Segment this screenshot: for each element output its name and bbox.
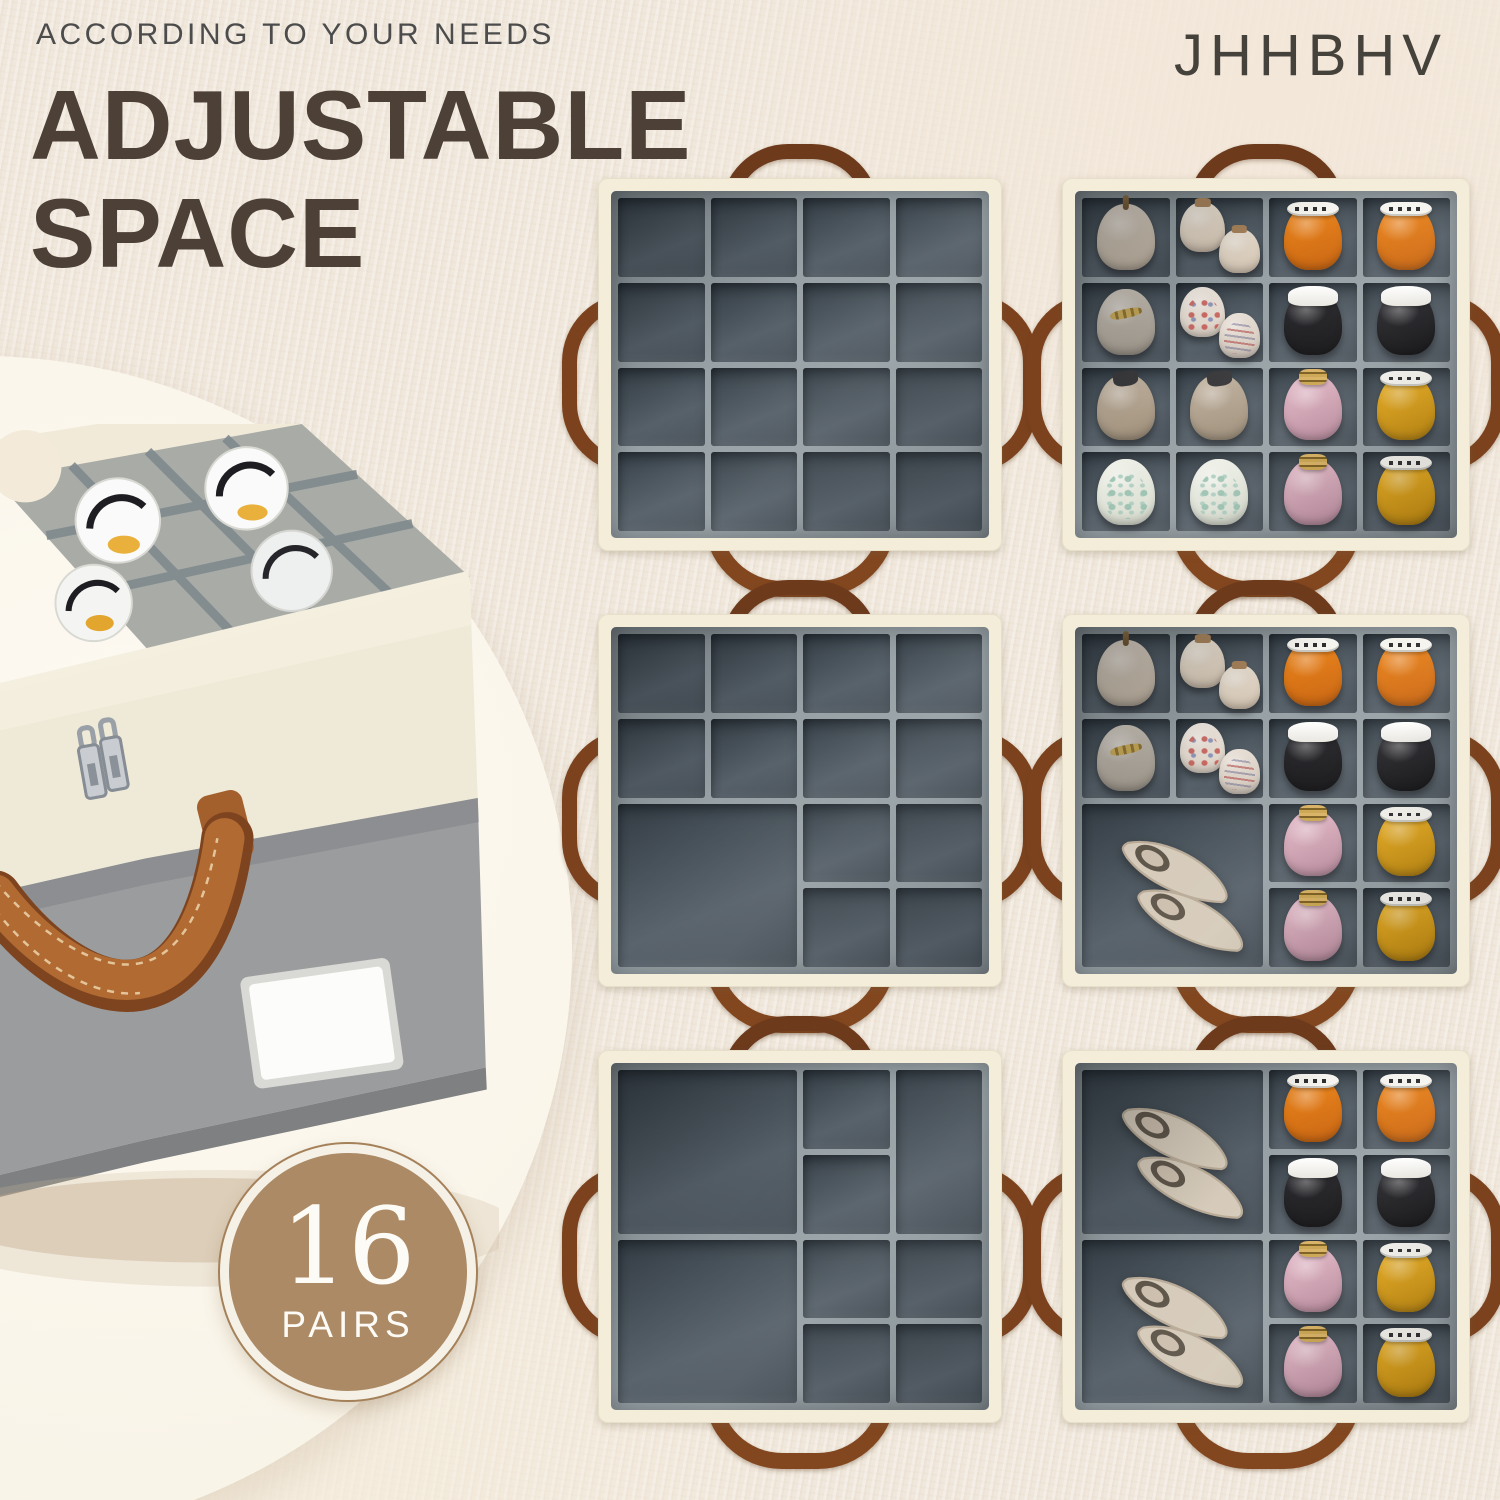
compartment (1363, 452, 1451, 531)
compartment (1363, 719, 1451, 798)
shoe-label-band (1287, 638, 1339, 653)
divider-grid-2 (1075, 191, 1457, 538)
compartment (1269, 1324, 1357, 1403)
compartment (618, 804, 797, 968)
shoe (1097, 459, 1155, 525)
shoe (1284, 640, 1342, 706)
compartment (618, 1240, 797, 1404)
eyebrow-text: ACCORDING TO YOUR NEEDS (36, 18, 555, 52)
shoe (1284, 810, 1342, 876)
shoe (1377, 289, 1435, 355)
compartment (1176, 719, 1264, 798)
compartment (618, 1070, 797, 1234)
compartment (1082, 634, 1170, 713)
compartment (711, 719, 798, 798)
compartment (618, 198, 705, 277)
shoe-label-band (1380, 1074, 1432, 1089)
shoe (1180, 287, 1226, 337)
shoe-print (1104, 472, 1148, 520)
shoe (1097, 374, 1155, 440)
compartment (896, 1070, 983, 1234)
shoe (1284, 1161, 1342, 1227)
compartment (1176, 634, 1264, 713)
shoe-print (1185, 297, 1220, 333)
shoe-cuff (1381, 286, 1431, 306)
badge-number: 16 (281, 1198, 416, 1296)
shoe-heel-stem (1123, 631, 1129, 646)
shoe-pair (1093, 813, 1252, 957)
compartment (1176, 198, 1264, 277)
compartment (896, 634, 983, 713)
shoe (1284, 1246, 1342, 1312)
shoe (1284, 204, 1342, 270)
shoe (1219, 229, 1259, 273)
compartment (618, 719, 705, 798)
shoe-gold-rings (1299, 890, 1327, 906)
compartment (896, 804, 983, 883)
shoe (1377, 1076, 1435, 1142)
shoe (1377, 204, 1435, 270)
compartment (803, 1070, 890, 1149)
shoe-gold-accent (1109, 306, 1142, 321)
compartment (618, 634, 705, 713)
shoe-gold-rings (1299, 369, 1327, 385)
compartment (1082, 368, 1170, 447)
shoe (1284, 374, 1342, 440)
shoe-gold-accent (1109, 742, 1142, 757)
compartment (1082, 1070, 1263, 1234)
compartment (1269, 804, 1357, 883)
shoe (1180, 723, 1226, 773)
organizer-box-4 (1062, 614, 1470, 987)
compartment (1176, 452, 1264, 531)
shoe-print (1185, 733, 1220, 769)
shoe-label-band (1380, 1328, 1432, 1343)
compartment (1363, 888, 1451, 967)
organizer-box-6 (1062, 1050, 1470, 1423)
compartment (1363, 1324, 1451, 1403)
shoe (1219, 665, 1259, 709)
organizer-box-3 (598, 614, 1002, 987)
shoe (1219, 313, 1259, 357)
flats-pair-icon (1093, 1080, 1252, 1224)
compartment (1269, 283, 1357, 362)
shoe (1377, 810, 1435, 876)
compartment (1363, 634, 1451, 713)
compartment (896, 1240, 983, 1319)
compartment (803, 452, 890, 531)
divider-grid-4 (1075, 627, 1457, 974)
title-line-2: SPACE (30, 180, 692, 288)
compartment (711, 283, 798, 362)
shoe-label-band (1380, 638, 1432, 653)
organizer-box-slot-6 (1062, 1050, 1470, 1423)
shoe (1219, 749, 1259, 793)
shoe-gold-rings (1299, 1241, 1327, 1257)
shoe-label-band (1380, 456, 1432, 471)
shoe-heel-cap (1194, 634, 1210, 643)
shoe (1377, 1331, 1435, 1397)
shoe (1097, 204, 1155, 270)
shoe-label-band (1380, 1243, 1432, 1258)
shoe-cuff (1381, 722, 1431, 742)
compartment (803, 368, 890, 447)
organizer-box-slot-3 (598, 614, 1002, 987)
compartment (1363, 1070, 1451, 1149)
shoe (1377, 640, 1435, 706)
shoe (1377, 895, 1435, 961)
compartment (803, 888, 890, 967)
title-line-1: ADJUSTABLE (30, 72, 692, 180)
shoe (1097, 640, 1155, 706)
shoe-cuff (1288, 286, 1338, 306)
compartment (711, 198, 798, 277)
organizer-box-5 (598, 1050, 1002, 1423)
shoe-sole-cap (1112, 369, 1139, 387)
shoe-cuff (1381, 1158, 1431, 1178)
compartment (1176, 283, 1264, 362)
compartment (1082, 452, 1170, 531)
divider-grid-6 (1075, 1063, 1457, 1410)
compartment (711, 368, 798, 447)
compartment (803, 1324, 890, 1403)
compartment (1269, 1240, 1357, 1319)
shoe (1284, 895, 1342, 961)
shoe-print (1224, 322, 1255, 354)
shoe (1284, 1076, 1342, 1142)
flats-pair-icon (1093, 1249, 1252, 1393)
compartment (1176, 368, 1264, 447)
compartment (896, 1324, 983, 1403)
shoe (1097, 725, 1155, 791)
capacity-badge: 16 PAIRS (220, 1144, 476, 1400)
compartment (896, 368, 983, 447)
compartment (1363, 283, 1451, 362)
compartment (1363, 1155, 1451, 1234)
organizer-box-1 (598, 178, 1002, 551)
divider-grid-1 (611, 191, 989, 538)
compartment (896, 198, 983, 277)
shoe (1180, 202, 1226, 252)
compartment (1269, 452, 1357, 531)
shoe (1377, 725, 1435, 791)
page-title: ADJUSTABLE SPACE (30, 72, 692, 288)
badge-label: PAIRS (281, 1304, 414, 1346)
compartment (803, 1155, 890, 1234)
shoe-gold-rings (1299, 454, 1327, 470)
shoe-print (1197, 472, 1241, 520)
shoe-heel-cap (1194, 198, 1210, 207)
compartment (618, 283, 705, 362)
shoe (1377, 459, 1435, 525)
compartment (618, 452, 705, 531)
organizer-box-slot-5 (598, 1050, 1002, 1423)
compartment (1082, 719, 1170, 798)
organizer-box-slot-4 (1062, 614, 1470, 987)
shoe-label-band (1287, 1074, 1339, 1089)
shoe-gold-rings (1299, 1326, 1327, 1342)
compartment (1269, 634, 1357, 713)
organizer-box-slot-2 (1062, 178, 1470, 551)
compartment (1082, 1240, 1263, 1404)
label-pocket (239, 957, 404, 1089)
compartment (896, 283, 983, 362)
compartment (1082, 283, 1170, 362)
compartment (1363, 804, 1451, 883)
shoe (1190, 374, 1248, 440)
compartment (711, 452, 798, 531)
compartment (1269, 888, 1357, 967)
shoe (1097, 289, 1155, 355)
shoe (1377, 1246, 1435, 1312)
compartment (1269, 198, 1357, 277)
organizer-grid (598, 178, 1470, 1423)
shoe (1284, 725, 1342, 791)
compartment (1082, 804, 1263, 968)
compartment (1363, 198, 1451, 277)
shoe-label-band (1380, 202, 1432, 217)
shoe-gold-rings (1299, 805, 1327, 821)
shoe (1284, 289, 1342, 355)
compartment (803, 198, 890, 277)
compartment (896, 719, 983, 798)
compartment (1269, 719, 1357, 798)
shoe-sole-cap (1206, 369, 1233, 387)
organizer-box-slot-1 (598, 178, 1002, 551)
shoe (1377, 374, 1435, 440)
compartment (803, 283, 890, 362)
shoe (1284, 1331, 1342, 1397)
compartment (711, 634, 798, 713)
shoe-print (1224, 758, 1255, 790)
shoe-label-band (1380, 892, 1432, 907)
compartment (1363, 368, 1451, 447)
divider-grid-3 (611, 627, 989, 974)
compartment (1269, 368, 1357, 447)
shoe (1284, 459, 1342, 525)
shoe-heel-cap (1232, 661, 1246, 669)
shoe (1190, 459, 1248, 525)
shoe-cuff (1288, 722, 1338, 742)
compartment (896, 452, 983, 531)
shoe-heel-cap (1232, 225, 1246, 233)
shoe (1180, 638, 1226, 688)
shoe-label-band (1380, 807, 1432, 822)
flats-pair-icon (1093, 813, 1252, 957)
compartment (803, 719, 890, 798)
compartment (896, 888, 983, 967)
compartment (803, 634, 890, 713)
compartment (803, 1240, 890, 1319)
brand-logo: JHHBHV (1174, 22, 1448, 89)
shoe-label-band (1380, 371, 1432, 386)
organizer-box-2 (1062, 178, 1470, 551)
compartment (1269, 1070, 1357, 1149)
compartment (1363, 1240, 1451, 1319)
compartment (803, 804, 890, 883)
shoe-pair (1093, 1080, 1252, 1224)
shoe-label-band (1287, 202, 1339, 217)
shoe (1377, 1161, 1435, 1227)
shoe-heel-stem (1123, 195, 1129, 210)
compartment (1082, 198, 1170, 277)
compartment (1269, 1155, 1357, 1234)
divider-grid-5 (611, 1063, 989, 1410)
marketing-page: ACCORDING TO YOUR NEEDS ADJUSTABLE SPACE… (0, 0, 1500, 1500)
compartment (618, 368, 705, 447)
shoe-pair (1093, 1249, 1252, 1393)
shoe-cuff (1288, 1158, 1338, 1178)
